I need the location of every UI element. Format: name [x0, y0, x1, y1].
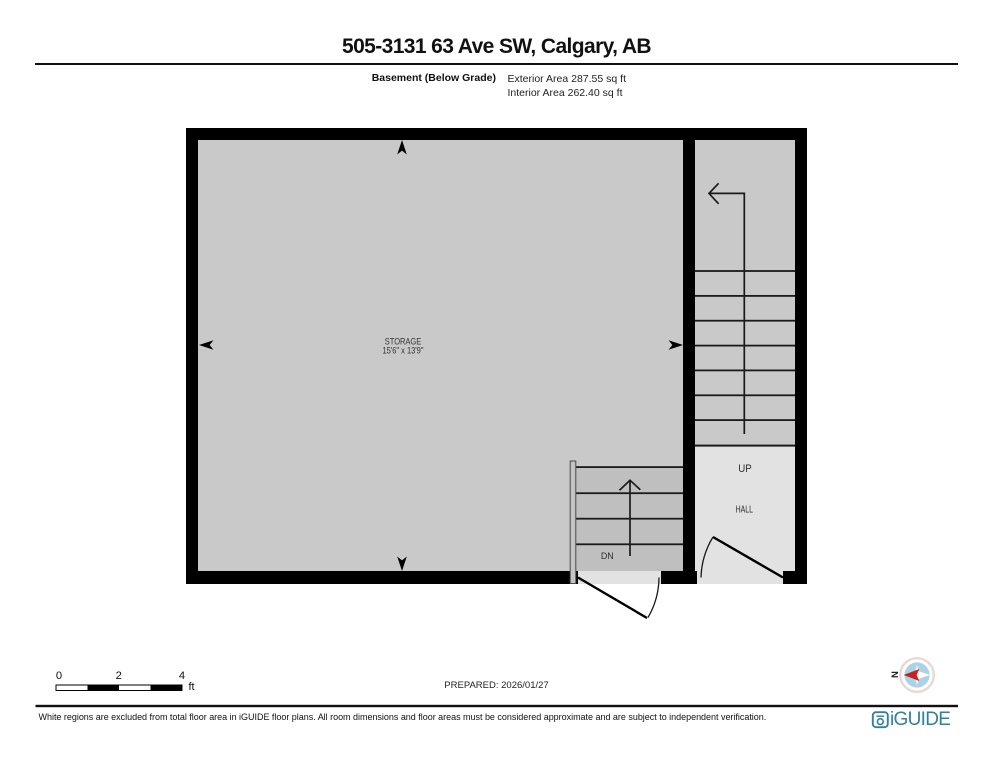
svg-text:15'6" x 13'9": 15'6" x 13'9" [383, 345, 424, 356]
svg-text:DN: DN [601, 551, 614, 562]
svg-text:UP: UP [738, 463, 752, 475]
svg-text:HALL: HALL [736, 505, 754, 516]
svg-text:N: N [890, 671, 901, 678]
